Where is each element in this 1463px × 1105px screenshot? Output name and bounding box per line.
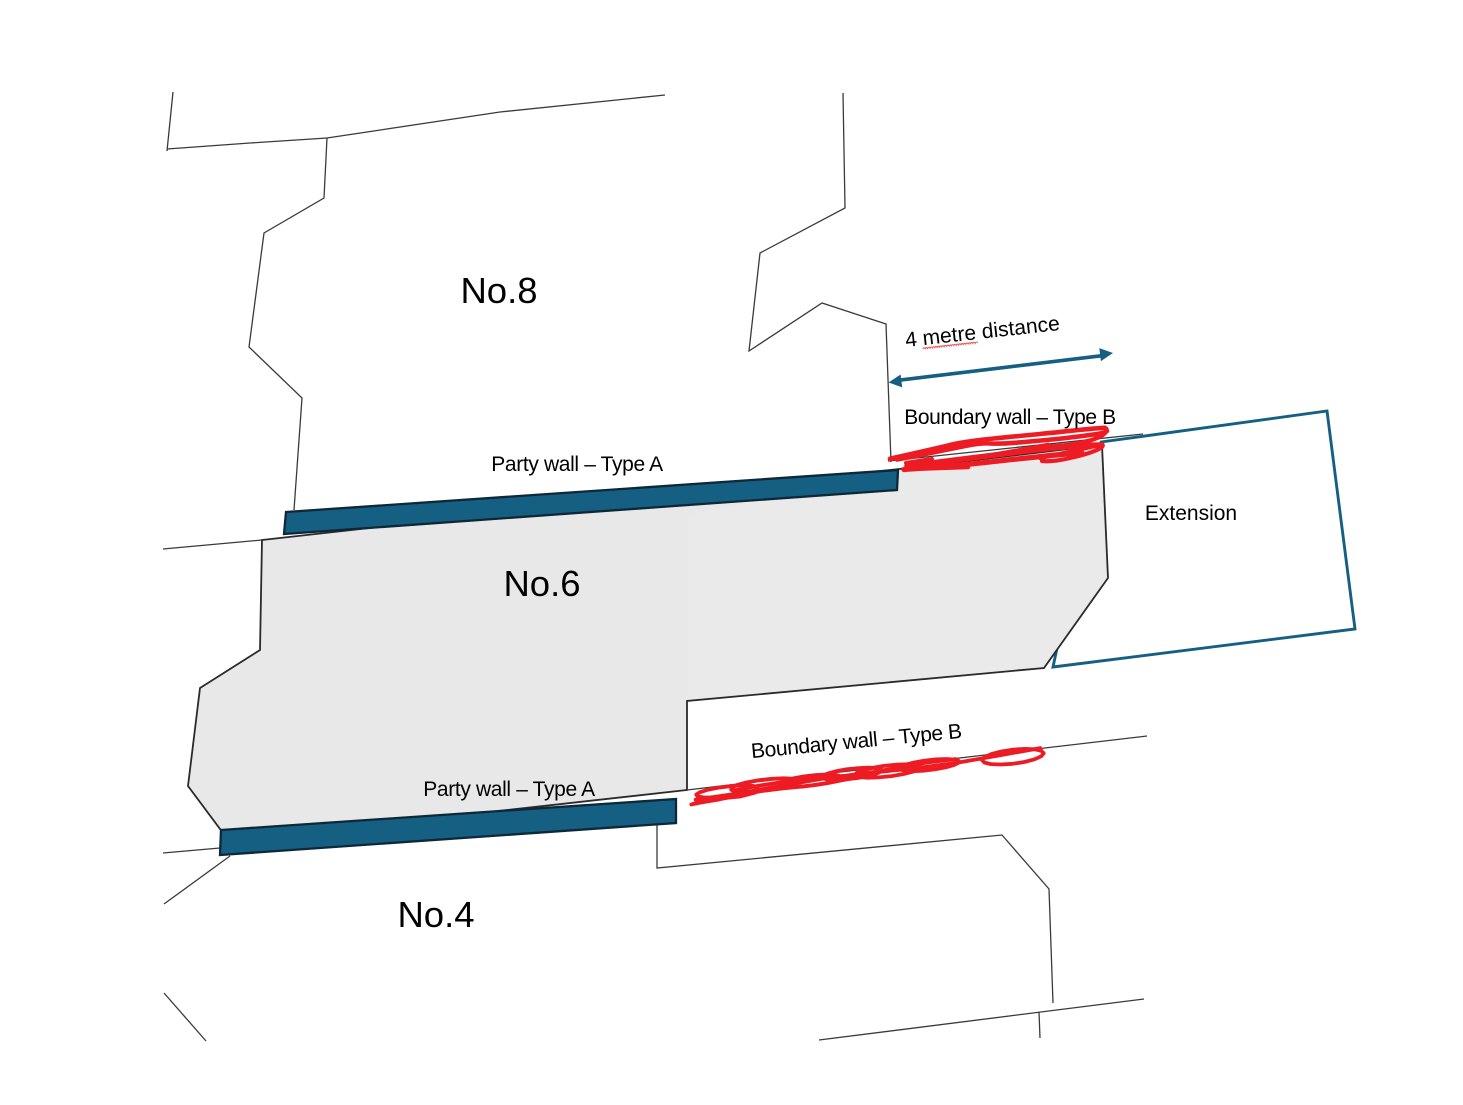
svg-text:Boundary wall – Type B: Boundary wall – Type B [750,720,963,763]
svg-text:Boundary wall – Type B: Boundary wall – Type B [904,406,1115,429]
svg-text:4 metre distance: 4 metre distance [904,312,1061,352]
svg-text:Party wall – Type A: Party wall – Type A [423,778,595,801]
svg-text:No.6: No.6 [503,563,580,604]
svg-text:Extension: Extension [1145,502,1237,525]
svg-text:No.4: No.4 [397,894,474,935]
svg-text:Party wall – Type A: Party wall – Type A [491,453,663,476]
svg-text:No.8: No.8 [460,270,537,311]
